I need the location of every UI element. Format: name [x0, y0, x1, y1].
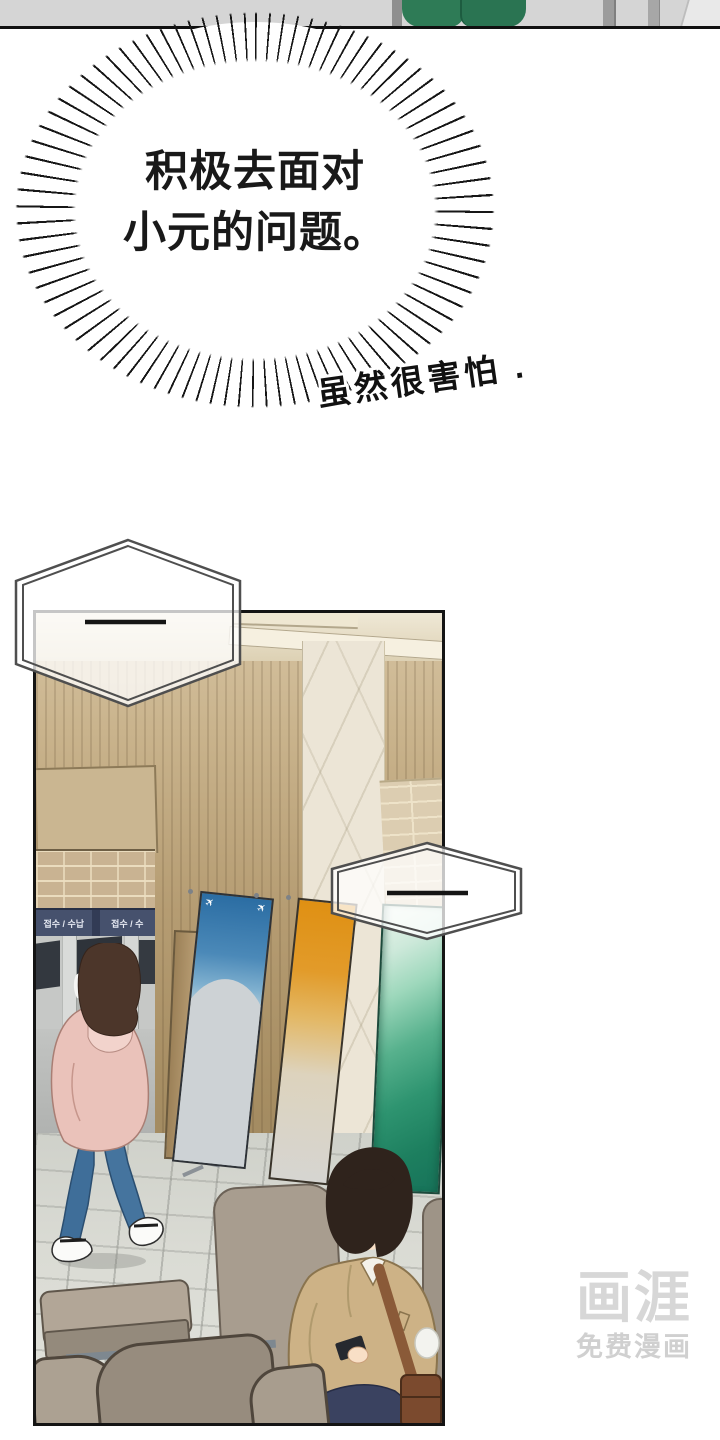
burst-bubble-text: 积极去面对 小元的问题。: [13, 142, 497, 264]
banner-grommet: [286, 895, 291, 900]
banner-grommet: [254, 893, 259, 898]
light-wall-corner: [680, 0, 720, 26]
counter-sign: 접수 / 수납 접수 / 수: [36, 908, 155, 936]
gray-post: [603, 0, 616, 26]
gray-post: [648, 0, 660, 26]
burst-line-1: 积极去面对: [13, 142, 497, 203]
counter-sign-text: 접수 / 수: [100, 917, 156, 930]
burst-line-2: 小元的问题。: [13, 203, 497, 264]
counter-sign-text: 접수 / 수납: [36, 917, 92, 930]
sign-divider: [92, 910, 100, 936]
comic-page: 접수 / 수납 접수 / 수 ✈ ✈: [0, 0, 720, 1440]
smooth-wall-panel-left: [36, 765, 158, 856]
banner-grommet: [188, 889, 193, 894]
walking-woman: [44, 943, 194, 1278]
watermark-tagline: 免费漫画: [556, 1334, 712, 1361]
scene-panel: 접수 / 수납 접수 / 수 ✈ ✈: [33, 610, 445, 1426]
plane-icon: ✈: [254, 900, 269, 916]
stone-block-wall-left: [36, 849, 155, 912]
stone-tile-wall-right: [380, 777, 445, 914]
watermark-logo: 画涯: [556, 1270, 712, 1326]
watermark: 画涯 免费漫画: [556, 1270, 712, 1361]
burst-speech-bubble: 积极去面对 小元的问题。: [13, 10, 497, 410]
plane-icon: ✈: [202, 894, 217, 910]
